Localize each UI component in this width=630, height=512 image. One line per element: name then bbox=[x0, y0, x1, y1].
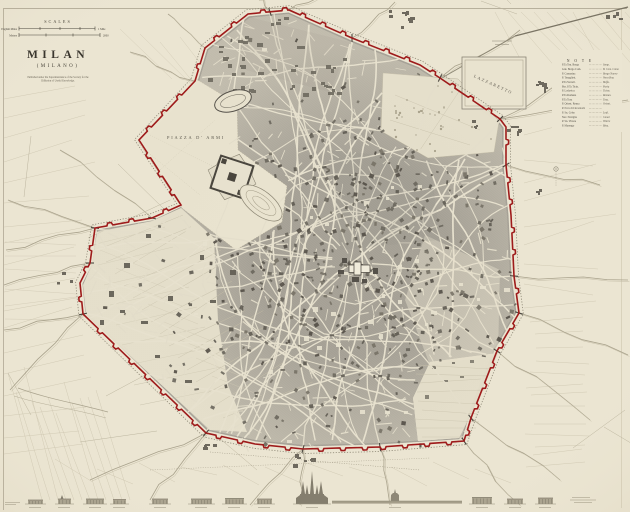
svg-text:Canal: Canal bbox=[603, 116, 610, 119]
svg-text:P. Lodovica: P. Lodovica bbox=[562, 90, 575, 93]
svg-text:Pavia: Pavia bbox=[602, 85, 610, 88]
svg-text:2000: 2000 bbox=[103, 35, 109, 38]
svg-text:P.Ta Vercell.: P.Ta Vercell. bbox=[562, 81, 576, 84]
svg-text:SCALES: SCALES bbox=[44, 19, 72, 24]
svg-text:Orient.: Orient. bbox=[603, 103, 611, 106]
svg-text:Lodi.: Lodi. bbox=[602, 111, 609, 114]
svg-text:P. Comasina: P. Comasina bbox=[562, 72, 576, 75]
svg-text:Diffusion of Useful Knowledge.: Diffusion of Useful Knowledge. bbox=[41, 80, 75, 83]
svg-text:Bina.: Bina. bbox=[603, 125, 609, 128]
svg-text:P. Sn. Celso: P. Sn. Celso bbox=[562, 111, 575, 114]
svg-text:P. Sn. Vittore: P. Sn. Vittore bbox=[562, 120, 577, 123]
svg-text:(MILANO): (MILANO) bbox=[37, 64, 80, 69]
svg-text:Bor. P.Ta Ticin.: Bor. P.Ta Ticin. bbox=[562, 85, 579, 88]
svg-text:Semp.: Semp. bbox=[603, 64, 610, 67]
svg-text:P.Ta Ten. Borgo: P.Ta Ten. Borgo bbox=[562, 64, 580, 67]
svg-text:Gde. Borgo Com.: Gde. Borgo Com. bbox=[562, 68, 581, 71]
svg-text:Roman.: Roman. bbox=[602, 94, 612, 97]
svg-text:P. Orient. Renza: P. Orient. Renza bbox=[562, 103, 580, 106]
svg-text:Tosa.: Tosa. bbox=[603, 98, 609, 101]
svg-text:P.Ta Tosa: P.Ta Tosa bbox=[562, 98, 573, 101]
svg-text:MILAN: MILAN bbox=[27, 49, 89, 61]
svg-text:B. Com. Como: B. Com. Como bbox=[603, 68, 619, 71]
svg-text:English Miles: English Miles bbox=[1, 28, 17, 31]
svg-text:N O T E: N O T E bbox=[567, 59, 593, 63]
svg-text:Vittore: Vittore bbox=[603, 120, 611, 123]
svg-text:Vercellina: Vercellina bbox=[603, 77, 614, 80]
svg-text:Buffa.: Buffa. bbox=[603, 81, 610, 84]
svg-text:P. N.va di Circonvall.: P. N.va di Circonvall. bbox=[562, 107, 585, 110]
svg-text:P.Ta Romana: P.Ta Romana bbox=[562, 94, 577, 97]
svg-text:P. Marengo: P. Marengo bbox=[562, 125, 575, 128]
svg-text:Ticine.: Ticine. bbox=[603, 90, 611, 93]
svg-text:1 Mile: 1 Mile bbox=[98, 28, 106, 31]
svg-text:PIAZZA D' ARMI: PIAZZA D' ARMI bbox=[167, 135, 225, 140]
svg-text:Metres: Metres bbox=[9, 35, 17, 38]
svg-text:Nav. Naviglio: Nav. Naviglio bbox=[562, 116, 578, 119]
svg-text:Borgo Nuovo: Borgo Nuovo bbox=[603, 72, 618, 75]
svg-text:P. Tenagliett.: P. Tenagliett. bbox=[562, 77, 576, 80]
